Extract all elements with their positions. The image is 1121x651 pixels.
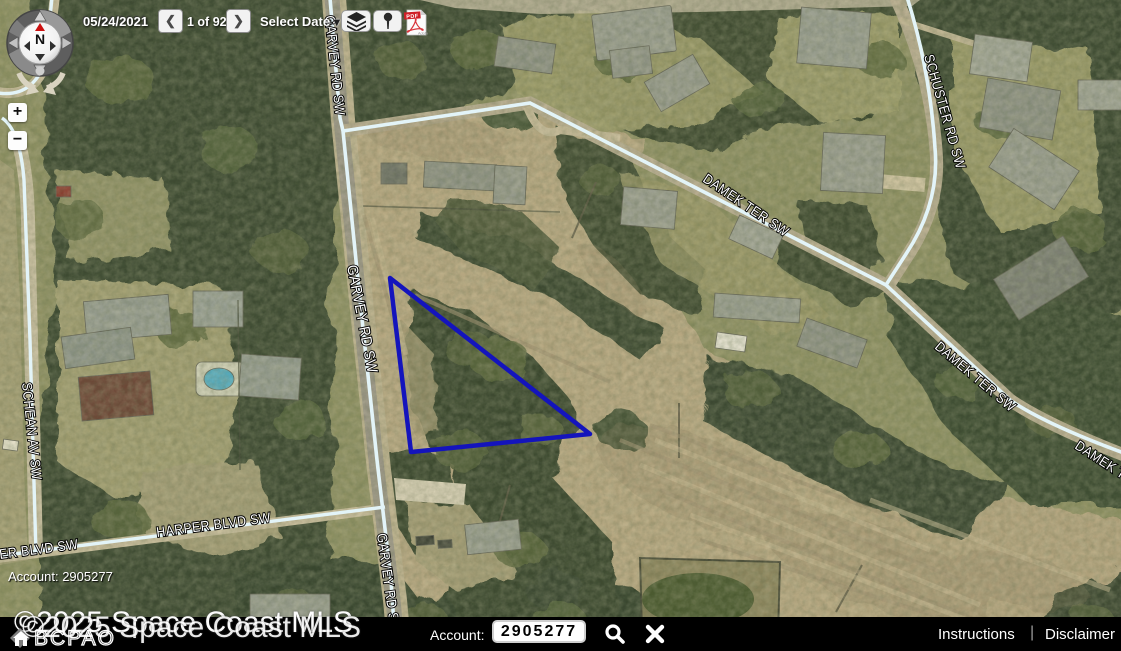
svg-text:Adobe: Adobe <box>418 32 428 36</box>
svg-text:BCPAO: BCPAO <box>34 627 116 650</box>
svg-text:PDF: PDF <box>406 14 419 21</box>
svg-text:N: N <box>35 31 45 47</box>
svg-text:Account: 2905277: Account: 2905277 <box>8 569 113 584</box>
